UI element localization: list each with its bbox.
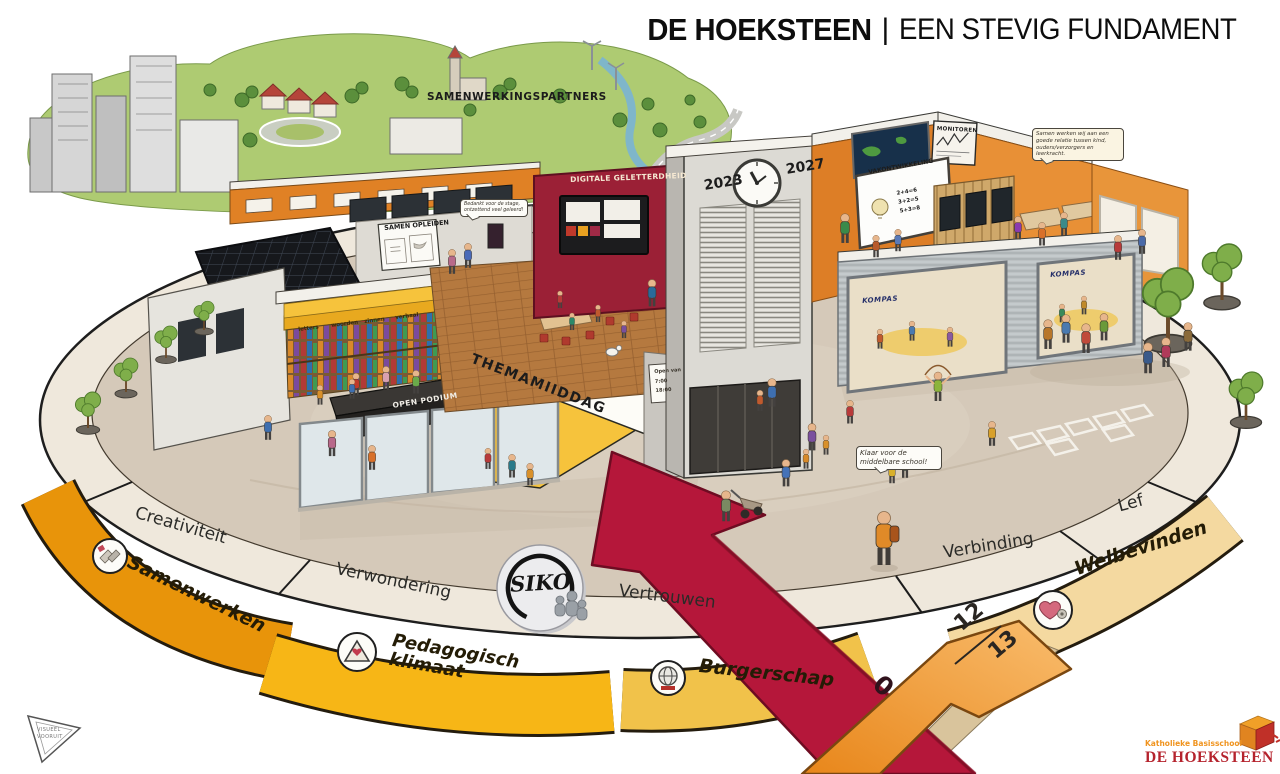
page-title: DE HOEKSTEEN | EEN STEVIG FUNDAMENT <box>633 12 1266 48</box>
title-separator: | <box>882 13 890 47</box>
samenwerkingspartners-label: SAMENWERKINGSPARTNERS <box>427 92 607 104</box>
stage-speech-bubble: Bedankt voor de stage, ontzettend veel g… <box>460 199 528 217</box>
middelbare-speech-bubble: Klaar voor de middelbare school! <box>856 446 942 470</box>
school-logo-small: Katholieke Basisschool <box>1145 740 1242 748</box>
visueel-vooruit-label: VISUEEL VOORUIT <box>37 727 63 741</box>
school-logo-large: DE HOEKSTEEN <box>1145 749 1274 766</box>
samenwerken-icon <box>93 539 127 573</box>
welbevinden-icon <box>1034 591 1072 629</box>
small-poster <box>488 224 503 248</box>
pedagogisch-klimaat-icon <box>338 633 376 671</box>
whiteboard-sums: 2+4=6 3+2=5 5+3=8 <box>896 186 921 216</box>
burgerschap-icon <box>651 661 685 695</box>
title-light: EEN STEVIG FUNDAMENT <box>899 13 1236 47</box>
title-bold: DE HOEKSTEEN <box>647 12 871 48</box>
library <box>276 272 452 398</box>
illustration-artwork <box>0 0 1280 774</box>
illustration-canvas: DE HOEKSTEEN | EEN STEVIG FUNDAMENT SAME… <box>0 0 1280 774</box>
door-sign-text: Open van 7:00 18:00 <box>654 366 683 396</box>
middelbare-speech-text: Klaar voor de middelbare school! <box>860 449 927 466</box>
hoeksteen-logo-icon <box>1240 716 1280 750</box>
relatie-speech-text: Samen werken wij aan een goede relatie t… <box>1036 131 1109 157</box>
siko-label: SIKO <box>505 569 576 596</box>
relatie-speech-bubble: Samen werken wij aan een goede relatie t… <box>1032 128 1124 161</box>
